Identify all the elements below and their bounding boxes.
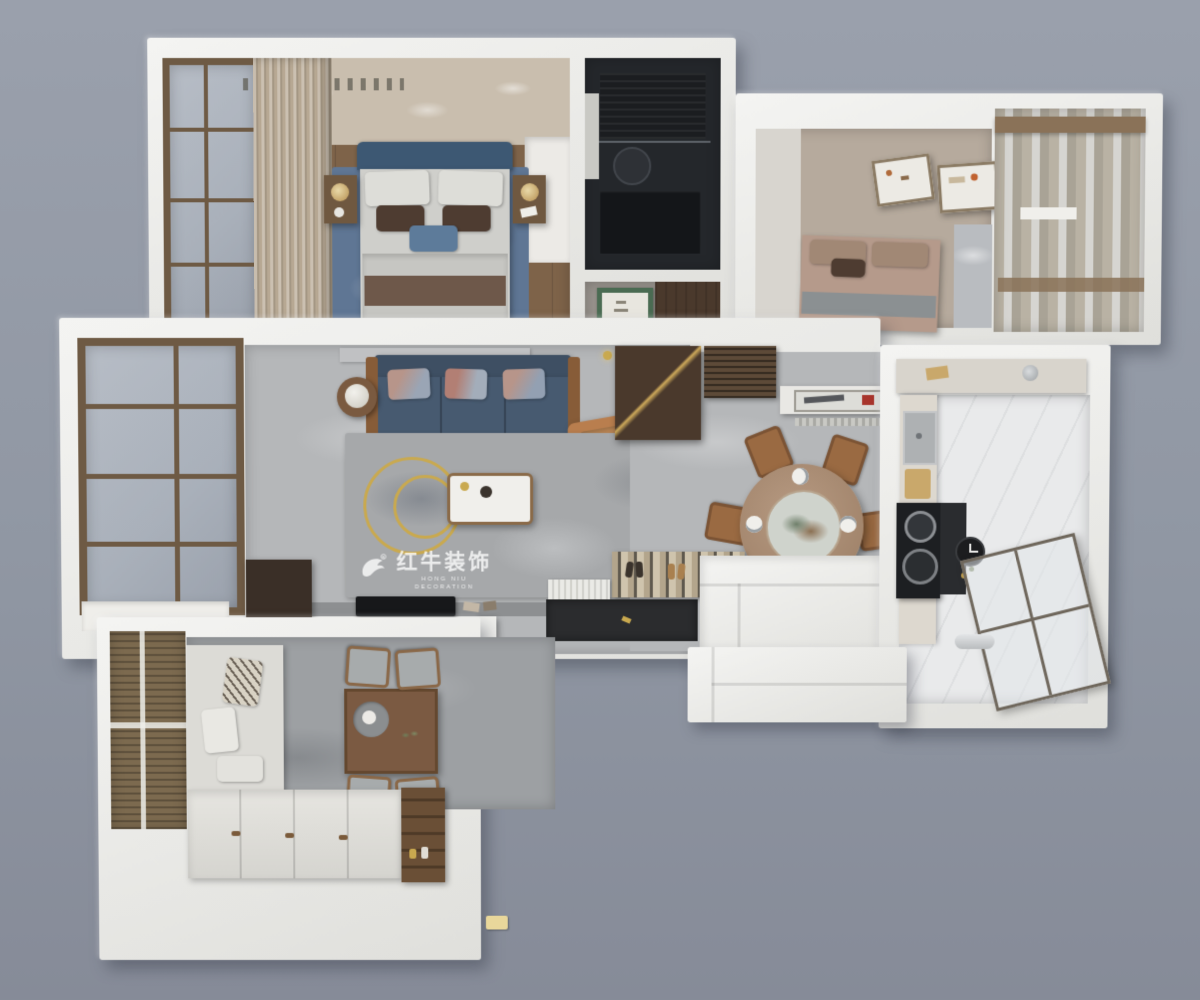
picture-mark bbox=[614, 309, 628, 312]
corner-desk bbox=[246, 560, 312, 624]
picture-mark bbox=[616, 301, 626, 304]
wardrobe-handle bbox=[339, 835, 348, 840]
watermark-brand: 红牛装饰 bbox=[390, 552, 498, 574]
sink-drain bbox=[916, 433, 922, 439]
window-mullion bbox=[170, 128, 254, 132]
window-mullion-vertical bbox=[204, 65, 210, 329]
study-chair bbox=[345, 646, 391, 689]
cutting-board bbox=[905, 469, 931, 499]
study-wardrobe bbox=[188, 790, 402, 879]
coffee-table-top bbox=[447, 473, 533, 525]
bathroom-door-leaf bbox=[585, 93, 599, 179]
kitchen-walls bbox=[879, 345, 1111, 728]
wardrobe-handle bbox=[232, 831, 241, 836]
art-dot bbox=[949, 176, 965, 183]
bedroom2-entry-strip bbox=[755, 129, 801, 328]
window-mullion bbox=[86, 404, 236, 409]
living-dining-walls bbox=[59, 318, 880, 659]
white-pillow bbox=[201, 707, 239, 754]
window-frame bbox=[140, 631, 146, 829]
window-mullion bbox=[171, 263, 255, 267]
bookshelf bbox=[401, 788, 445, 883]
wall-art-frame bbox=[937, 161, 1000, 213]
bolster-pillow bbox=[217, 756, 263, 782]
master-bed bbox=[360, 169, 510, 322]
desk-slats bbox=[254, 599, 300, 607]
art-streak bbox=[804, 395, 844, 404]
entry-cabinet bbox=[615, 346, 701, 440]
bathroom-vanity bbox=[600, 191, 700, 253]
window-mullion bbox=[87, 542, 237, 547]
sofa-pillow bbox=[387, 368, 431, 400]
keys-on-mat bbox=[621, 616, 631, 624]
shoe bbox=[625, 561, 634, 578]
side-table bbox=[337, 377, 377, 417]
study-window-blinds bbox=[110, 631, 187, 829]
shower-area bbox=[600, 73, 706, 139]
shower-glass-edge bbox=[595, 141, 711, 143]
sofa-pillow bbox=[444, 368, 487, 399]
table-lamp bbox=[331, 183, 349, 201]
steel-pot bbox=[1022, 365, 1038, 381]
watermark-tagline: HONG NIU DECORATION bbox=[391, 576, 499, 592]
decor-book bbox=[520, 206, 538, 218]
tv-screen bbox=[356, 596, 456, 616]
towel-roll bbox=[955, 634, 995, 649]
art-dot bbox=[901, 175, 909, 180]
cooking-pot bbox=[902, 549, 938, 585]
clock-hand bbox=[970, 551, 978, 553]
lower-wall-bump bbox=[688, 647, 907, 722]
kitchen-upper-cabinets bbox=[896, 359, 1086, 393]
nightstand-left bbox=[324, 175, 357, 223]
second-bedroom-walls bbox=[735, 93, 1163, 345]
study-chair bbox=[394, 648, 441, 691]
bed-pillow bbox=[364, 170, 430, 206]
living-balcony-window bbox=[77, 338, 245, 615]
shoe bbox=[635, 561, 643, 577]
window-frame bbox=[110, 722, 186, 728]
study-floor bbox=[186, 637, 555, 809]
place-setting bbox=[792, 468, 809, 485]
master-bedroom-floor bbox=[253, 58, 570, 342]
shoe bbox=[677, 563, 686, 580]
balcony-wood-ledge bbox=[995, 117, 1146, 133]
side-table-lamp bbox=[345, 384, 369, 408]
table-plant bbox=[399, 727, 421, 743]
bathroom-floor bbox=[585, 58, 721, 270]
table-decor bbox=[480, 486, 492, 498]
tea-tray bbox=[353, 702, 389, 738]
floorplan-scene: R 红牛装饰 HONG NIU DECORATION bbox=[0, 0, 1200, 994]
balcony-window-sill bbox=[1020, 207, 1076, 219]
study-walls bbox=[97, 617, 481, 960]
bed-throw-pillow bbox=[409, 225, 457, 251]
window-seat bbox=[187, 645, 284, 793]
kitchen-floor bbox=[899, 395, 1091, 704]
registered-mark-glyph: R bbox=[382, 554, 385, 559]
place-setting bbox=[840, 516, 857, 533]
table-decor bbox=[460, 482, 469, 491]
tea-table bbox=[344, 689, 438, 774]
tea-cup bbox=[362, 710, 376, 724]
doorbell-chip bbox=[486, 916, 508, 930]
bedroom2-balcony bbox=[994, 109, 1146, 332]
sofa-pillow bbox=[502, 368, 545, 399]
wardrobe-seam bbox=[347, 790, 349, 879]
table-lamp bbox=[521, 183, 539, 201]
wall-step-line bbox=[712, 683, 907, 686]
entry-door-mat bbox=[546, 599, 698, 641]
master-wing-walls bbox=[147, 38, 736, 335]
wardrobe-handle bbox=[285, 833, 294, 838]
bed2-gray-throw bbox=[801, 291, 936, 318]
kitchen-sink bbox=[903, 411, 937, 465]
dining-slat-panel bbox=[704, 346, 776, 398]
decor-cup bbox=[334, 207, 344, 217]
art-red-square bbox=[862, 395, 874, 405]
console-books bbox=[483, 601, 497, 611]
bed-headboard bbox=[357, 142, 513, 170]
bread-board bbox=[926, 365, 949, 380]
chevron-pillow bbox=[222, 657, 264, 707]
watermark: R 红牛装饰 HONG NIU DECORATION bbox=[359, 548, 499, 594]
bull-icon: R bbox=[359, 552, 389, 582]
bathroom-mirror bbox=[613, 147, 651, 185]
shoe bbox=[668, 564, 675, 580]
second-bedroom-floor bbox=[755, 129, 992, 328]
bed2-accent-pillow bbox=[831, 258, 866, 277]
wall-art-frame bbox=[871, 153, 935, 207]
glass-partition-door bbox=[960, 533, 1111, 712]
bed-pillow bbox=[438, 170, 503, 206]
bed-runner bbox=[364, 276, 505, 306]
art-dot bbox=[971, 173, 978, 181]
place-setting bbox=[746, 516, 763, 533]
master-balcony-window bbox=[162, 58, 262, 336]
bedroom2-marble-strip bbox=[954, 224, 993, 327]
bed2-pillow bbox=[871, 242, 928, 268]
shelf-bottle bbox=[421, 847, 428, 859]
art-dot bbox=[886, 170, 893, 177]
balcony-wood-ledge bbox=[998, 278, 1144, 292]
shelf-bottle bbox=[409, 849, 416, 859]
entry-bench-ribbed bbox=[548, 580, 610, 600]
window-mullion bbox=[86, 474, 236, 479]
nightstand-right bbox=[513, 175, 546, 223]
lazy-susan bbox=[766, 490, 842, 566]
cooking-pot bbox=[904, 511, 936, 543]
master-curtains bbox=[253, 58, 333, 342]
window-mullion bbox=[170, 198, 254, 202]
cooktop bbox=[896, 503, 940, 599]
floor-lamp bbox=[603, 351, 612, 360]
